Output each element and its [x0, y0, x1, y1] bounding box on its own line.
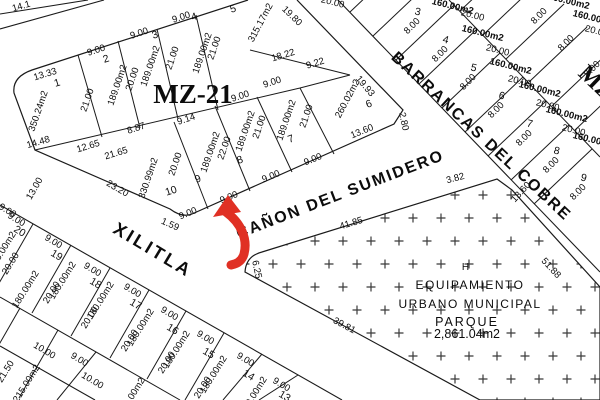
- highlight-arrow-shaft: [226, 212, 245, 265]
- lot-number: 8: [235, 153, 245, 166]
- dim-label: 9.00: [262, 75, 283, 91]
- lot-number: 19: [48, 247, 64, 263]
- dim-label: 18.22: [270, 47, 296, 64]
- dim-label: 21.65: [103, 145, 129, 162]
- dim-label: 12.65: [75, 138, 101, 155]
- dim-label: 8.00: [568, 182, 589, 203]
- lot-number: 7: [286, 132, 296, 145]
- dim-label: 21.50: [0, 359, 17, 385]
- dim-label: 2.80: [396, 111, 411, 131]
- dim-label: 20.00: [320, 0, 346, 11]
- lot-number: 6: [364, 97, 374, 110]
- dim-label: 260.02m2: [333, 78, 363, 120]
- dim-label: 20.00: [460, 7, 486, 23]
- lot-number: 17: [127, 296, 143, 312]
- dim-label: 9.00: [159, 304, 181, 323]
- dim-label: 8.00: [529, 6, 550, 27]
- park-label: URBANO MUNICIPAL: [398, 297, 541, 311]
- lot-number: 5: [469, 62, 478, 75]
- dim-label: 14.1: [11, 0, 32, 14]
- dim-label: 6.25: [249, 259, 264, 279]
- dim-label: 23.20: [104, 178, 130, 199]
- park-area-label: 2,861.04m2: [434, 327, 500, 341]
- dim-label: 8.00: [514, 128, 535, 149]
- dim-label: 9.00: [177, 205, 198, 222]
- dim-label: 8.00: [541, 155, 562, 176]
- lot-number: 4: [189, 10, 198, 23]
- dim-label: 9.00: [260, 168, 281, 185]
- dim-label: 160.00m2: [461, 23, 505, 44]
- lot-number: 2: [101, 52, 110, 65]
- lot-number: 1: [53, 76, 62, 89]
- dim-label: 21.00: [164, 45, 182, 71]
- dim-label: 350.24m2: [27, 89, 51, 133]
- park-label: H: [462, 262, 470, 273]
- dim-label: 330.99m2: [137, 156, 161, 200]
- lot-number: 15: [200, 345, 216, 361]
- block-label-mz21: MZ-21: [153, 79, 232, 109]
- dim-label: 315.17m2: [246, 2, 276, 44]
- dim-label: 9.22: [305, 56, 326, 72]
- dim-label: 8.00: [556, 33, 577, 54]
- dim-label: 21.00: [298, 103, 316, 129]
- park-label: EQUIPAMIENTO: [416, 278, 525, 292]
- lot-number: 9: [579, 172, 588, 185]
- dim-label: 9.00: [235, 350, 257, 369]
- dim-label: 13.00: [24, 176, 45, 202]
- street-name-xilitla: XILITLA: [110, 218, 197, 281]
- lot-number: 13: [276, 388, 292, 400]
- dim-label: 8.00: [486, 100, 507, 121]
- lot-number: 4: [441, 34, 450, 47]
- dim-label: 215.00m2: [11, 363, 43, 400]
- dim-label: 9.00: [129, 26, 150, 42]
- dim-label: 14.48: [25, 134, 51, 151]
- lot-number: 10: [164, 184, 179, 199]
- lot-number: 9: [193, 172, 203, 185]
- dim-label: 8.00: [402, 16, 423, 37]
- dim-label: 20.00: [79, 305, 101, 331]
- dim-label: 9.00: [302, 151, 323, 168]
- highlight-arrow: [213, 195, 245, 265]
- lot-number: 14: [240, 367, 256, 383]
- dim-label: 20.00: [584, 23, 600, 39]
- dim-label: 8.87: [126, 121, 147, 137]
- dim-label: 3.82: [445, 171, 466, 186]
- dim-label: 10.00: [31, 340, 57, 362]
- plat-map-canvas: XILITLACAÑON DEL SUMIDEROBARRANCAS DEL C…: [0, 0, 600, 400]
- plat-map: XILITLACAÑON DEL SUMIDEROBARRANCAS DEL C…: [0, 0, 600, 400]
- lot-number: 5: [228, 2, 237, 15]
- dim-label: 19.80: [279, 4, 304, 28]
- dim-label: 8.00: [430, 44, 451, 65]
- dim-label: 10.00: [79, 370, 105, 392]
- dim-label: 9.00: [230, 89, 251, 105]
- dim-label: 20.00: [167, 151, 185, 177]
- dim-label: 9.14: [176, 112, 197, 128]
- lot-number: 8: [552, 145, 561, 158]
- dim-label: 20.00: [485, 42, 511, 58]
- dim-label: 9.00: [69, 350, 91, 369]
- lot-number: 3: [413, 6, 422, 19]
- dim-label: 180.00m2: [116, 376, 148, 400]
- lot-number: 6: [497, 90, 506, 103]
- dim-label: 9.00: [195, 328, 217, 347]
- dim-label: 1.59: [159, 216, 180, 234]
